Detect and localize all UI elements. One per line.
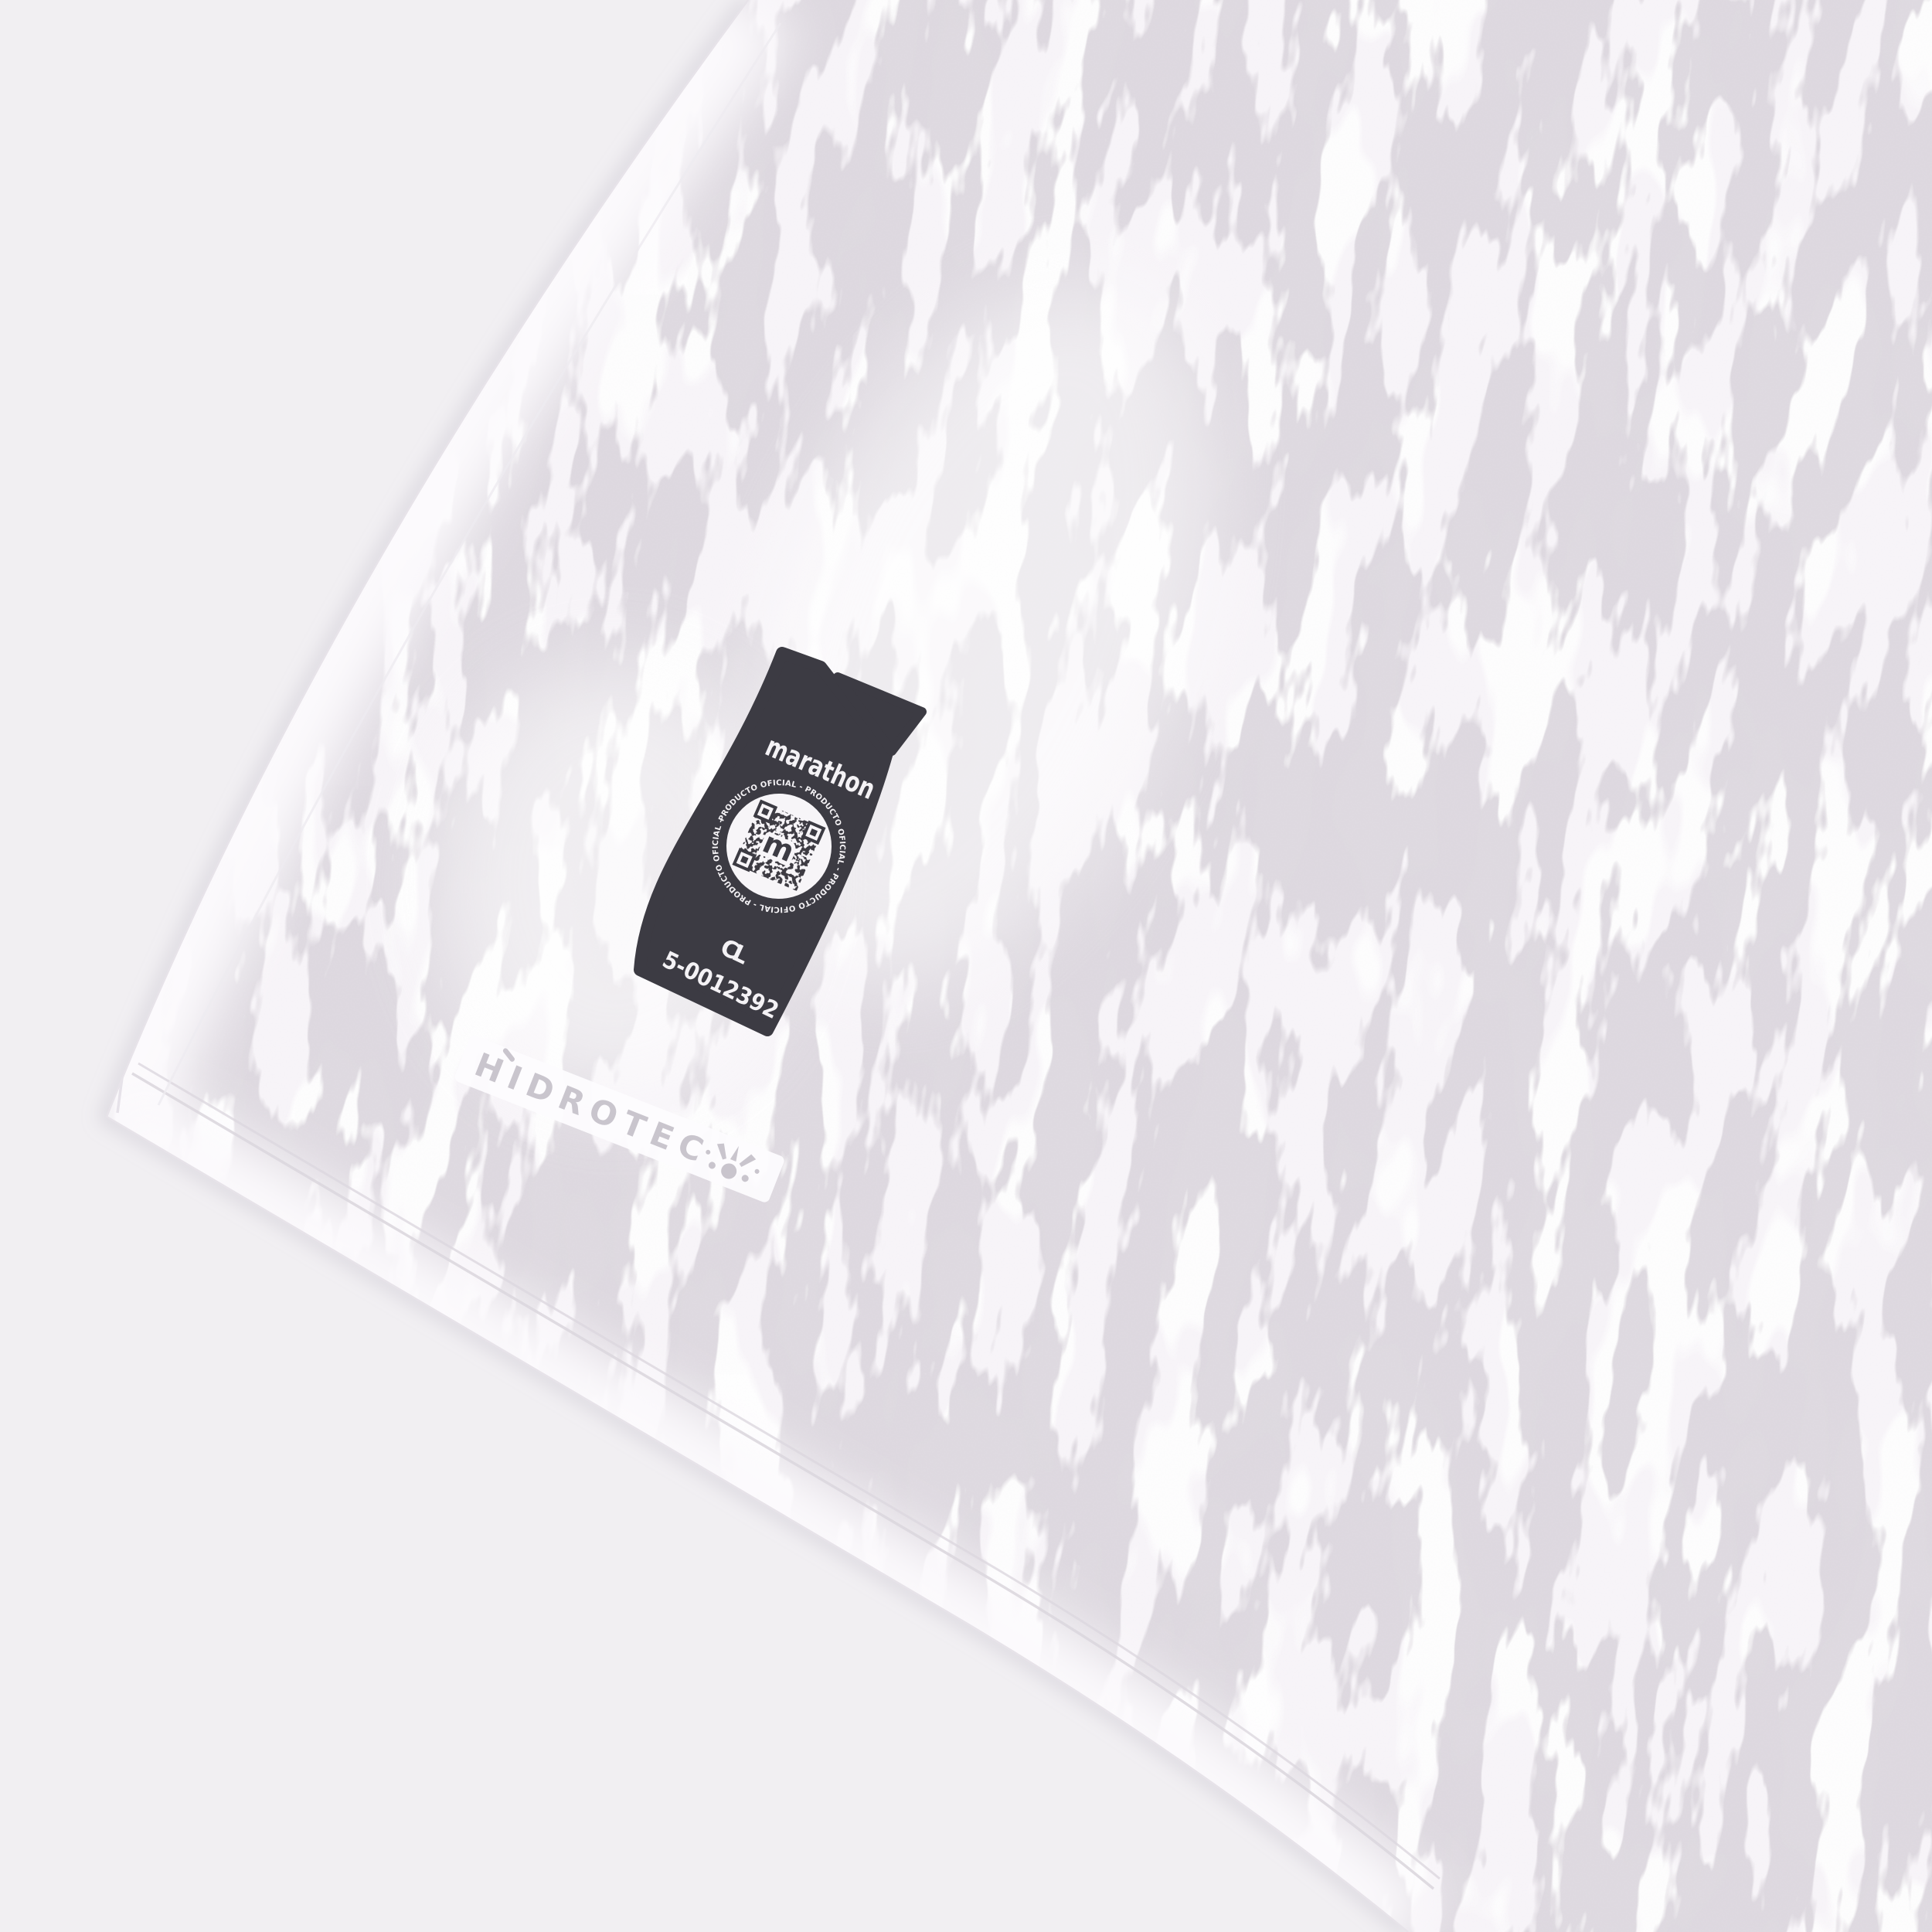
photo-canvas: HIDROTEC marathon PRODUCTO OFICIAL - PRO…: [0, 0, 1932, 1932]
product-photo: HIDROTEC marathon PRODUCTO OFICIAL - PRO…: [0, 0, 1932, 1932]
